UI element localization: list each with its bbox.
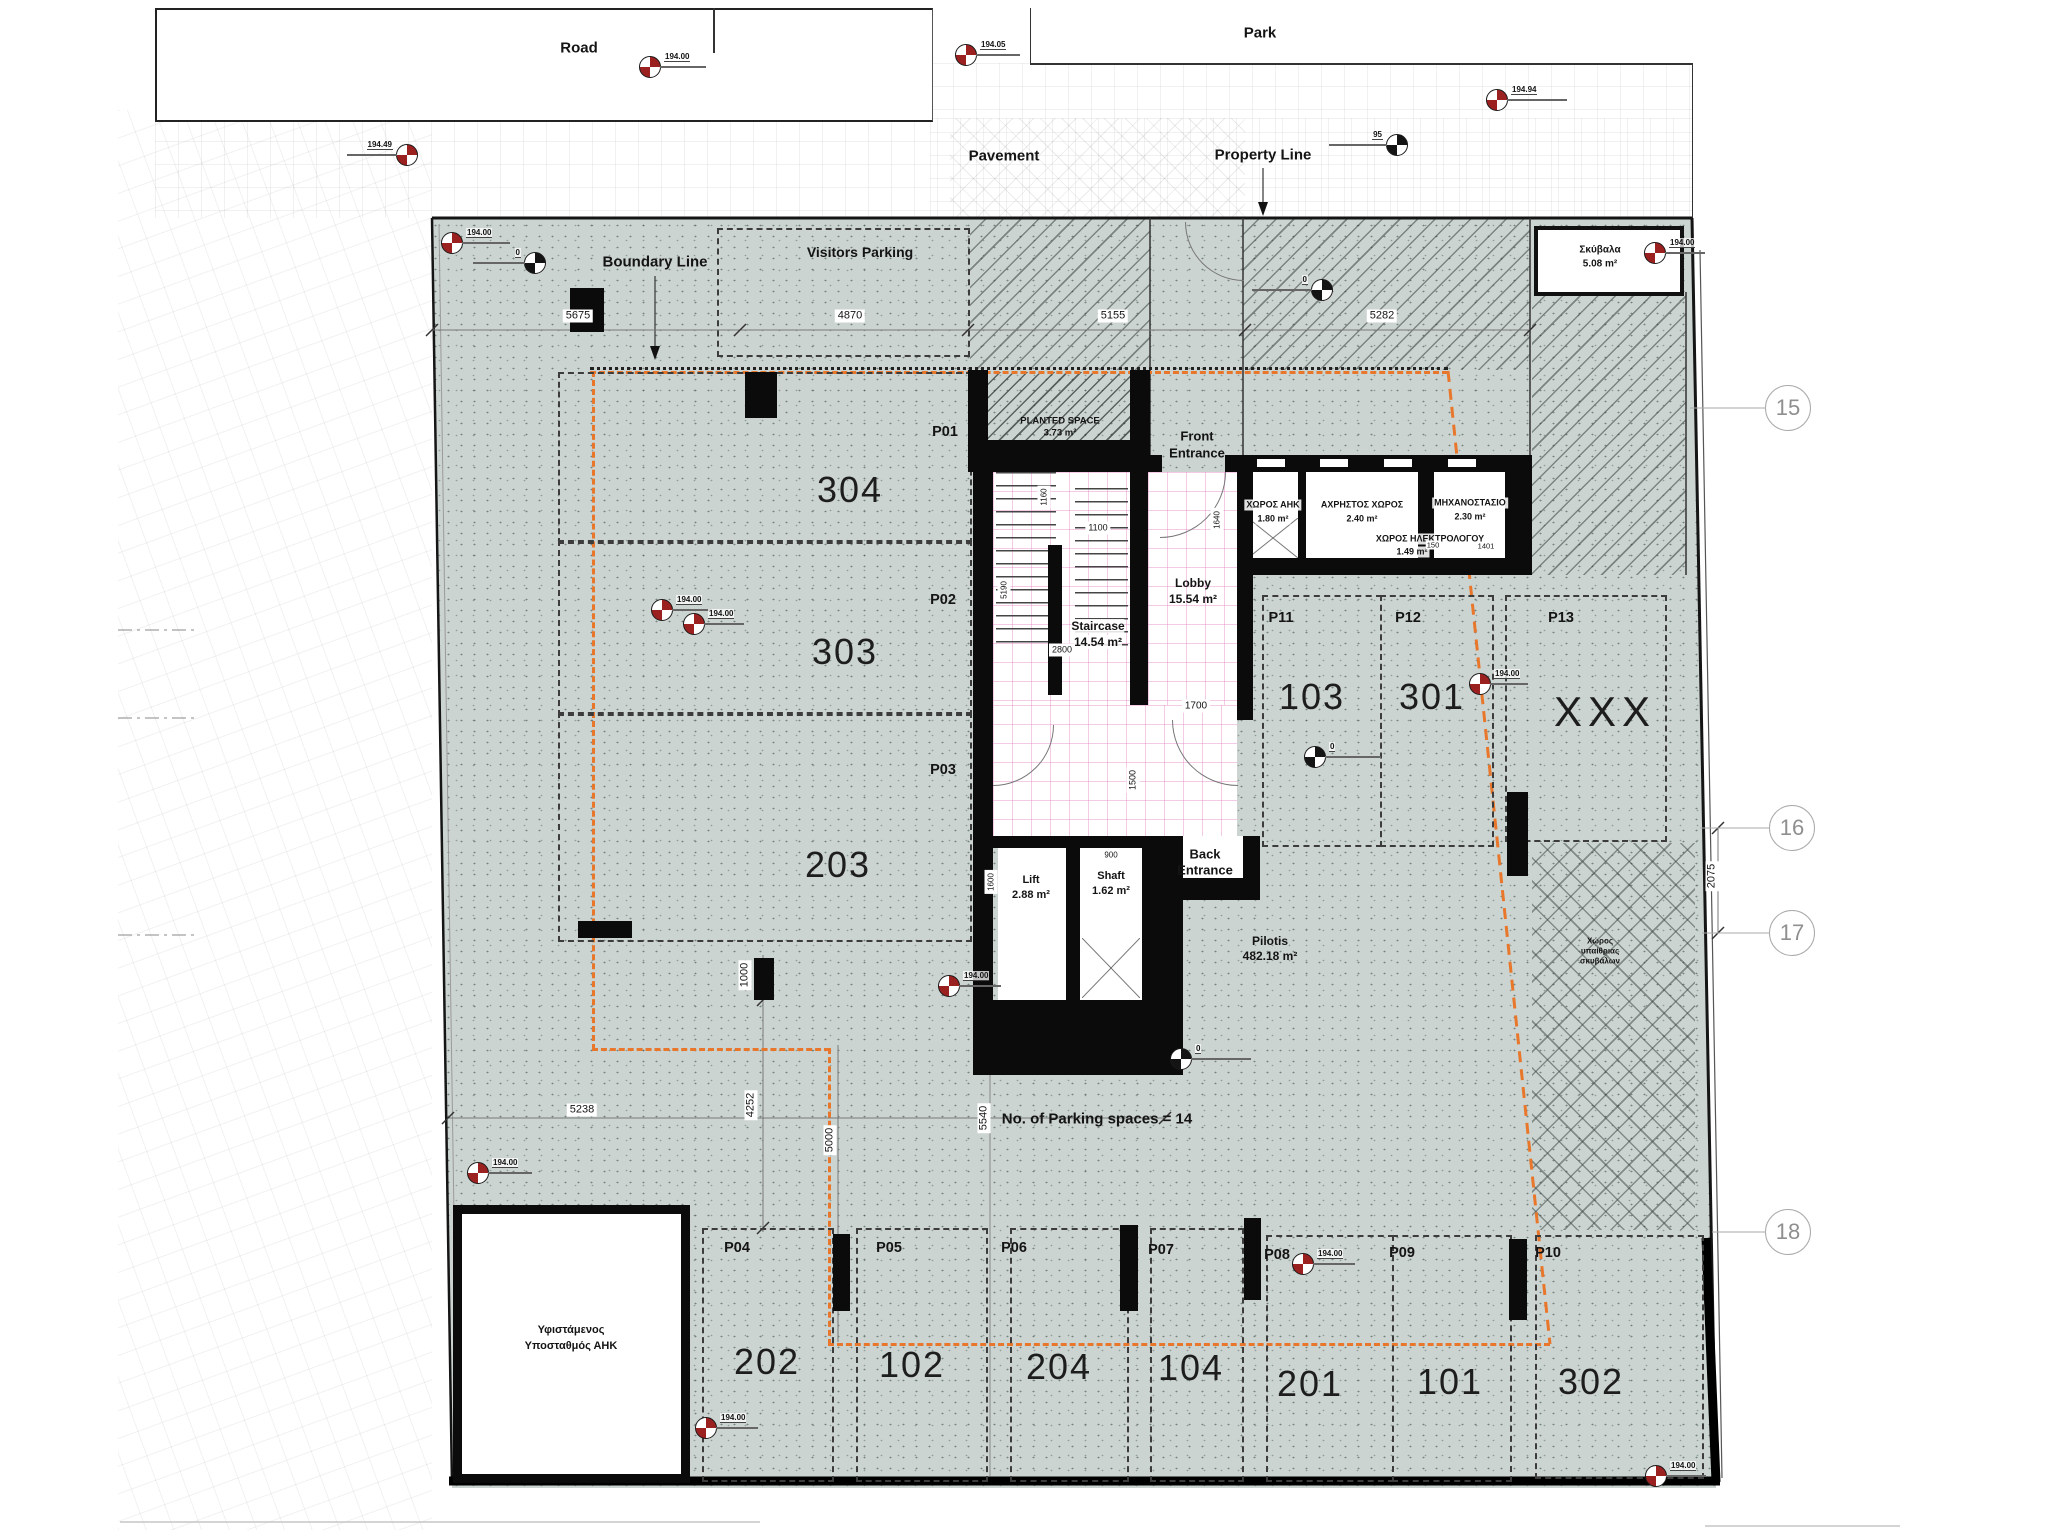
dim-1640: 1640 xyxy=(1211,508,1224,532)
survey-marker-site-nw: 194.00 xyxy=(441,232,463,254)
column-5 xyxy=(833,1234,850,1311)
marker-icon xyxy=(396,144,418,166)
parking-box-101 xyxy=(1392,1235,1512,1482)
marker-leader xyxy=(473,262,525,264)
unit-104: 104 xyxy=(1158,1347,1224,1389)
unit-303: 303 xyxy=(812,631,878,673)
core-bottom-mass xyxy=(973,1000,1183,1075)
mixano-room-area: 2.30 m² xyxy=(1452,512,1487,523)
marker-icon xyxy=(467,1162,489,1184)
dim-5155: 5155 xyxy=(1098,310,1128,323)
axristos-room-label: ΑΧΡΗΣΤΟΣ ΧΩΡΟΣ xyxy=(1319,500,1405,511)
lift-room xyxy=(998,848,1066,1000)
column-7 xyxy=(1244,1218,1261,1300)
spot-code-p13: P13 xyxy=(1548,610,1574,626)
marker-elevation: 194.00 xyxy=(720,1413,746,1423)
marker-icon xyxy=(639,56,661,78)
benchmark-value: 0 xyxy=(1329,742,1335,752)
unit-202: 202 xyxy=(734,1341,800,1383)
benchmark-icon xyxy=(1304,746,1326,768)
stair-lobby-divider xyxy=(1130,472,1148,705)
utility-window-3 xyxy=(1384,459,1412,467)
road-label: Road xyxy=(560,40,598,57)
parking-count-note: No. of Parking spaces = 14 xyxy=(1002,1111,1193,1128)
benchmark-icon xyxy=(1170,1048,1192,1070)
marker-elevation: 194.00 xyxy=(1494,669,1520,679)
unit-301: 301 xyxy=(1399,676,1465,718)
dim-5238: 5238 xyxy=(567,1104,597,1117)
marker-elevation: 194.05 xyxy=(980,40,1006,50)
dim-150: 150 xyxy=(1426,541,1441,550)
survey-marker-park: 194.94 xyxy=(1486,89,1508,111)
pilotis-label: Pilotis xyxy=(1252,934,1288,948)
dim-1700: 1700 xyxy=(1182,700,1210,713)
benchmark-value: 0 xyxy=(1195,1044,1201,1054)
dim-1500: 1500 xyxy=(1127,767,1140,793)
grid-bubble-17: 17 xyxy=(1769,910,1815,956)
marker-icon xyxy=(441,232,463,254)
lobby-area: 15.54 m² xyxy=(1169,592,1217,606)
marker-elevation: 194.00 xyxy=(664,52,690,62)
parking-box-103 xyxy=(1262,595,1382,847)
planted-bottom-wall xyxy=(968,440,1150,472)
marker-elevation: 194.00 xyxy=(963,971,989,981)
marker-leader xyxy=(976,54,1020,56)
storage-area-label-2: υπαίθριας xyxy=(1581,947,1619,956)
survey-marker-road-park: 194.05 xyxy=(955,44,977,66)
spot-code-p09: P09 xyxy=(1389,1245,1415,1261)
projection-line-step-h xyxy=(592,1048,830,1051)
parking-box-301 xyxy=(1380,595,1494,847)
benchmark-icon xyxy=(1386,134,1408,156)
utility-window-4 xyxy=(1448,459,1476,467)
refuse-room-area: 5.08 m² xyxy=(1583,259,1617,270)
benchmark-103: 0 xyxy=(1304,746,1326,768)
front-entrance-label-2: Entrance xyxy=(1169,446,1225,461)
back-entrance-column xyxy=(1243,836,1260,880)
benchmark-driveway: 0 xyxy=(1311,279,1333,301)
spot-code-p10: P10 xyxy=(1535,1245,1561,1261)
survey-marker-refuse: 194.00 xyxy=(1644,242,1666,264)
property-line-label: Property Line xyxy=(1215,147,1312,164)
spot-code-p03: P03 xyxy=(930,762,956,778)
dim-2800: 2800 xyxy=(1049,644,1075,657)
stair-center-wall xyxy=(1048,545,1062,695)
column-9 xyxy=(1507,792,1528,876)
dim-4252: 4252 xyxy=(745,1090,758,1120)
front-entrance-label-1: Front xyxy=(1180,429,1213,444)
lobby-label: Lobby xyxy=(1175,576,1211,590)
parking-box-203 xyxy=(558,712,972,942)
marker-leader xyxy=(488,1172,532,1174)
boundary-line-label: Boundary Line xyxy=(602,254,707,271)
unit-201: 201 xyxy=(1277,1363,1343,1405)
dim-5540: 5540 xyxy=(978,1103,991,1133)
spot-code-p01: P01 xyxy=(932,424,958,440)
unit-203: 203 xyxy=(805,844,871,886)
park-label: Park xyxy=(1244,25,1277,42)
marker-elevation: 194.00 xyxy=(466,228,492,238)
grid-bubble-15: 15 xyxy=(1765,385,1811,431)
marker-leader xyxy=(1325,756,1381,758)
grid-bubble-18-label: 18 xyxy=(1776,1219,1800,1245)
marker-leader xyxy=(462,242,510,244)
benchmark-icon xyxy=(1311,279,1333,301)
spot-code-p07: P07 xyxy=(1148,1242,1174,1258)
survey-marker-se-corner: 194.00 xyxy=(1645,1465,1667,1487)
planted-space-area: 3.73 m² xyxy=(1044,428,1077,439)
benchmark-value: 95 xyxy=(1372,130,1383,140)
grid-bubble-17-label: 17 xyxy=(1780,920,1804,946)
lift-top-wall xyxy=(993,836,1183,848)
marker-leader xyxy=(1252,289,1312,291)
unit-xxx: XXX xyxy=(1554,688,1656,736)
benchmark-value: 0 xyxy=(515,248,521,258)
dim-1401: 1401 xyxy=(1477,542,1496,551)
column-1 xyxy=(745,372,777,418)
marker-elevation: 194.00 xyxy=(1317,1249,1343,1259)
marker-icon xyxy=(695,1417,717,1439)
survey-marker-p04: 194.00 xyxy=(695,1417,717,1439)
parking-box-302 xyxy=(1535,1235,1704,1479)
core-left-wall xyxy=(973,458,993,1005)
floor-plan-canvas: Road Park Pavement Property Line Boundar… xyxy=(0,0,2048,1536)
dim-5675: 5675 xyxy=(563,310,593,323)
survey-marker-303-b: 194.00 xyxy=(683,613,705,635)
marker-leader xyxy=(1191,1058,1251,1060)
marker-leader xyxy=(1666,1475,1706,1477)
ahk-room-area: 1.80 m² xyxy=(1255,514,1290,525)
marker-elevation: 194.00 xyxy=(676,595,702,605)
marker-icon xyxy=(955,44,977,66)
grid-bubble-18: 18 xyxy=(1765,1209,1811,1255)
marker-leader xyxy=(704,623,744,625)
survey-marker-pavement-west: 194.49 xyxy=(396,144,418,166)
unit-204: 204 xyxy=(1026,1346,1092,1388)
marker-leader xyxy=(347,154,397,156)
projection-line-top xyxy=(590,367,1448,370)
marker-elevation: 194.00 xyxy=(492,1158,518,1168)
marker-leader xyxy=(1313,1263,1355,1265)
parking-box-201 xyxy=(1266,1235,1394,1482)
benchmark-icon xyxy=(524,252,546,274)
pilotis-area: 482.18 m² xyxy=(1243,949,1298,963)
substation-label-1: Υφιστάμενος xyxy=(538,1324,605,1336)
grid-bubble-16-label: 16 xyxy=(1780,815,1804,841)
marker-icon xyxy=(1292,1253,1314,1275)
unit-102: 102 xyxy=(879,1344,945,1386)
substation-label-2: Υποσταθμός ΑΗΚ xyxy=(525,1340,618,1352)
lift-shaft-divider xyxy=(1066,848,1080,1005)
grid-bubble-15-label: 15 xyxy=(1776,395,1800,421)
utility-window-2 xyxy=(1320,459,1348,467)
utility-window-1 xyxy=(1257,459,1285,467)
dim-5000: 5000 xyxy=(824,1125,837,1155)
ahk-room-label: ΧΩΡΟΣ ΑΗΚ xyxy=(1244,500,1301,511)
dim-2075: 2075 xyxy=(1706,861,1719,891)
marker-icon xyxy=(1486,89,1508,111)
lift-label: Lift xyxy=(1022,874,1039,886)
lobby-top-stub-right xyxy=(1225,455,1237,472)
survey-marker-303-a: 194.00 xyxy=(651,599,673,621)
survey-marker-substation: 194.00 xyxy=(467,1162,489,1184)
marker-leader xyxy=(1665,252,1705,254)
staircase-area: 14.54 m² xyxy=(1074,635,1122,649)
grid-bubble-16: 16 xyxy=(1769,805,1815,851)
spot-code-p02: P02 xyxy=(930,592,956,608)
marker-leader xyxy=(1507,99,1567,101)
spot-code-p04: P04 xyxy=(724,1240,750,1256)
lobby-right-wall xyxy=(1237,455,1253,720)
marker-leader xyxy=(1329,144,1387,146)
survey-marker-301: 194.00 xyxy=(1469,673,1491,695)
dim-5190: 5190 xyxy=(998,578,1011,602)
storage-area-label-1: Χώρος xyxy=(1587,937,1613,946)
refuse-room-label: Σκύβαλα xyxy=(1579,245,1620,256)
marker-leader xyxy=(672,609,712,611)
shaft-cross xyxy=(1082,938,1140,998)
spot-code-p11: P11 xyxy=(1269,610,1294,626)
planted-space-label: PLANTED SPACE xyxy=(1020,416,1100,427)
marker-elevation: 194.00 xyxy=(1669,238,1695,248)
marker-elevation: 194.49 xyxy=(367,140,393,150)
unit-103: 103 xyxy=(1279,676,1345,718)
lobby-top-stub-left xyxy=(1148,455,1162,472)
shaft-area: 1.62 m² xyxy=(1092,885,1130,897)
spot-code-p05: P05 xyxy=(876,1240,902,1256)
unit-304: 304 xyxy=(817,469,883,511)
marker-icon xyxy=(938,975,960,997)
column-6 xyxy=(1120,1225,1138,1311)
mixano-room-label: ΜΗΧΑΝΟΣΤΑΣΙΟ xyxy=(1432,498,1508,509)
marker-icon xyxy=(1469,673,1491,695)
column-4 xyxy=(754,958,774,1000)
benchmark-park: 95 xyxy=(1386,134,1408,156)
storage-area-label-3: σκυβάλων xyxy=(1580,957,1620,966)
spot-code-p08: P08 xyxy=(1264,1247,1290,1263)
marker-icon xyxy=(651,599,673,621)
survey-marker-road: 194.00 xyxy=(639,56,661,78)
marker-leader xyxy=(660,66,706,68)
spot-code-p06: P06 xyxy=(1001,1240,1027,1256)
lift-area: 2.88 m² xyxy=(1012,889,1050,901)
ilektro-room-area: 1.49 m² xyxy=(1394,547,1429,558)
marker-elevation: 194.94 xyxy=(1511,85,1537,95)
spot-code-p12: P12 xyxy=(1395,610,1421,626)
dim-5282: 5282 xyxy=(1367,310,1397,323)
axristos-room-area: 2.40 m² xyxy=(1344,514,1379,525)
pavement-label: Pavement xyxy=(969,148,1040,165)
dim-1100: 1100 xyxy=(1085,522,1110,535)
marker-elevation: 194.00 xyxy=(1670,1461,1696,1471)
unit-101: 101 xyxy=(1417,1361,1483,1403)
marker-leader xyxy=(716,1427,758,1429)
staircase-label: Staircase xyxy=(1071,619,1124,633)
column-8 xyxy=(1509,1239,1527,1320)
marker-leader xyxy=(959,985,1001,987)
column-3 xyxy=(578,921,632,938)
marker-icon xyxy=(1644,242,1666,264)
back-entrance-wall xyxy=(1183,878,1260,900)
dim-1600: 1600 xyxy=(985,870,998,894)
unit-302: 302 xyxy=(1558,1361,1624,1403)
dim-900: 900 xyxy=(1101,849,1120,862)
benchmark-site-nw: 0 xyxy=(524,252,546,274)
back-entrance-label-2: Entrance xyxy=(1177,863,1233,878)
shaft-label: Shaft xyxy=(1097,870,1125,882)
dim-1160: 1160 xyxy=(1038,485,1051,508)
dim-1000: 1000 xyxy=(739,960,752,990)
visitors-parking-label: Visitors Parking xyxy=(807,244,913,260)
parking-box-303 xyxy=(558,540,972,716)
marker-elevation: 194.00 xyxy=(708,609,734,619)
survey-marker-p08: 194.00 xyxy=(1292,1253,1314,1275)
marker-leader xyxy=(1490,683,1528,685)
survey-marker-pilotis: 194.00 xyxy=(938,975,960,997)
benchmark-value: 0 xyxy=(1302,275,1308,285)
back-entrance-label-1: Back xyxy=(1189,847,1220,862)
benchmark-pilotis: 0 xyxy=(1170,1048,1192,1070)
marker-icon xyxy=(1645,1465,1667,1487)
marker-icon xyxy=(683,613,705,635)
dim-4870: 4870 xyxy=(835,310,865,323)
